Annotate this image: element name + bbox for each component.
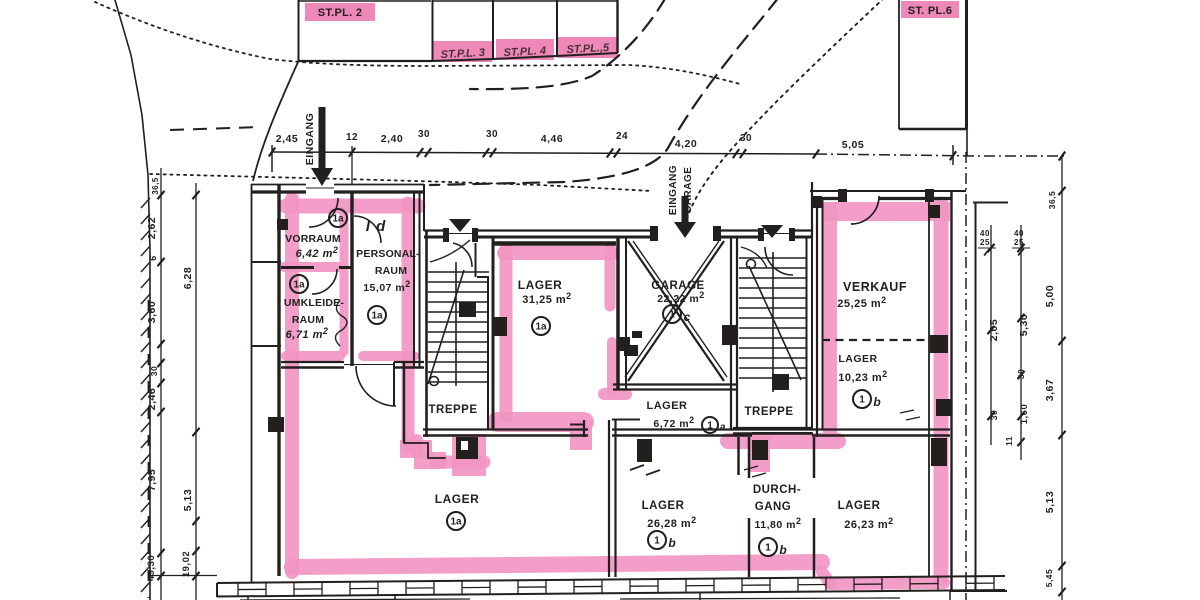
svg-text:ST.PL.,5: ST.PL.,5 — [566, 42, 610, 56]
svg-text:6,72 m2: 6,72 m2 — [653, 415, 694, 430]
svg-text:VERKAUF: VERKAUF — [843, 280, 907, 294]
svg-text:30: 30 — [740, 133, 752, 144]
svg-text:4,46: 4,46 — [541, 133, 563, 145]
svg-text:1a: 1a — [293, 280, 305, 291]
svg-text:1a: 1a — [450, 517, 462, 528]
svg-text:1a: 1a — [332, 214, 344, 225]
svg-text:11,80 m2: 11,80 m2 — [755, 516, 802, 531]
svg-text:TREPPE: TREPPE — [428, 404, 477, 416]
svg-text:a.: a. — [720, 422, 728, 433]
svg-text:I d: I d — [366, 218, 387, 235]
svg-text:3,60: 3,60 — [146, 301, 158, 323]
svg-text:24: 24 — [616, 131, 628, 142]
svg-text:6: 6 — [148, 255, 158, 261]
svg-text:22,22 m2: 22,22 m2 — [657, 290, 705, 305]
svg-text:ST.PL. 4: ST.PL. 4 — [503, 45, 546, 59]
svg-text:36,5: 36,5 — [151, 177, 160, 195]
svg-text:LAGER: LAGER — [518, 278, 563, 292]
svg-text:RAUM: RAUM — [292, 314, 324, 326]
svg-text:1: 1 — [707, 421, 713, 432]
svg-text:40: 40 — [980, 229, 990, 238]
svg-text:UMKLEIDE-: UMKLEIDE- — [284, 297, 344, 309]
svg-text:3,67: 3,67 — [1044, 379, 1056, 401]
svg-text:30: 30 — [149, 366, 159, 376]
svg-text:7,95: 7,95 — [146, 469, 158, 491]
svg-text:1: 1 — [859, 395, 865, 406]
svg-text:2,45: 2,45 — [276, 133, 298, 145]
svg-text:6,71 m2: 6,71 m2 — [286, 326, 329, 341]
svg-text:VORRAUM: VORRAUM — [285, 233, 341, 245]
svg-text:b: b — [779, 543, 786, 557]
svg-text:5,45: 5,45 — [1044, 569, 1054, 588]
svg-text:ST.PL. 2: ST.PL. 2 — [318, 7, 363, 19]
svg-text:GARAGE: GARAGE — [651, 280, 704, 292]
svg-text:LAGER: LAGER — [838, 500, 881, 512]
svg-text:EINGANG: EINGANG — [304, 113, 316, 166]
svg-text:2,05: 2,05 — [988, 319, 1000, 341]
svg-text:30: 30 — [989, 410, 999, 420]
svg-text:26,28 m2: 26,28 m2 — [647, 515, 696, 530]
svg-text:25: 25 — [980, 238, 990, 247]
svg-text:2,62: 2,62 — [146, 217, 158, 239]
svg-text:2,46: 2,46 — [146, 388, 158, 410]
svg-text:LAGER: LAGER — [642, 500, 685, 512]
svg-text:4,20: 4,20 — [675, 138, 697, 150]
svg-text:GANG: GANG — [755, 501, 792, 513]
svg-text:PERSONAL-: PERSONAL- — [356, 248, 420, 260]
svg-text:40: 40 — [1014, 229, 1024, 238]
svg-text:TREPPE: TREPPE — [744, 406, 793, 418]
svg-text:ST. PL.6: ST. PL.6 — [908, 5, 953, 17]
svg-text:5,13: 5,13 — [182, 489, 194, 511]
svg-text:49,30: 49,30 — [146, 555, 157, 581]
svg-text:1,60: 1,60 — [1019, 404, 1030, 425]
svg-text:ST.P.L. 3: ST.P.L. 3 — [440, 47, 485, 61]
svg-text:LAGER: LAGER — [435, 492, 480, 506]
svg-text:31,25 m2: 31,25 m2 — [522, 291, 571, 306]
svg-text:25: 25 — [1014, 238, 1024, 247]
svg-text:30: 30 — [1016, 369, 1026, 379]
svg-text:26,23 m2: 26,23 m2 — [844, 516, 893, 531]
svg-text:LAGER: LAGER — [647, 400, 688, 412]
svg-text:b: b — [873, 395, 880, 409]
svg-text:RAUM: RAUM — [375, 265, 407, 277]
svg-text:5,30: 5,30 — [1018, 314, 1030, 336]
svg-text:b: b — [668, 536, 675, 550]
svg-text:1: 1 — [765, 543, 771, 554]
svg-text:2,40: 2,40 — [381, 133, 403, 145]
svg-text:1a: 1a — [535, 322, 547, 333]
svg-text:12: 12 — [346, 132, 358, 143]
svg-text:15,07 m2: 15,07 m2 — [363, 279, 411, 294]
svg-text:1a: 1a — [371, 311, 383, 322]
svg-text:LAGER: LAGER — [838, 353, 877, 365]
svg-text:1: 1 — [654, 536, 660, 547]
svg-text:5,05: 5,05 — [842, 139, 864, 151]
svg-text:19,02: 19,02 — [181, 551, 192, 577]
svg-text:1: 1 — [669, 310, 675, 321]
svg-text:5,00: 5,00 — [1044, 285, 1056, 307]
svg-text:30: 30 — [418, 129, 430, 140]
svg-text:6,28: 6,28 — [182, 267, 194, 289]
svg-text:25,25 m2: 25,25 m2 — [837, 295, 886, 310]
svg-text:DURCH-: DURCH- — [753, 484, 801, 496]
svg-text:6,42 m2: 6,42 m2 — [296, 245, 339, 260]
svg-text:30: 30 — [486, 129, 498, 140]
svg-text:10,23 m2: 10,23 m2 — [838, 369, 887, 384]
svg-text:36,5: 36,5 — [1047, 191, 1057, 210]
svg-text:c: c — [684, 310, 691, 324]
svg-text:11: 11 — [1004, 436, 1014, 446]
svg-text:EINGANG: EINGANG — [668, 165, 679, 215]
svg-text:5,13: 5,13 — [1044, 491, 1056, 513]
